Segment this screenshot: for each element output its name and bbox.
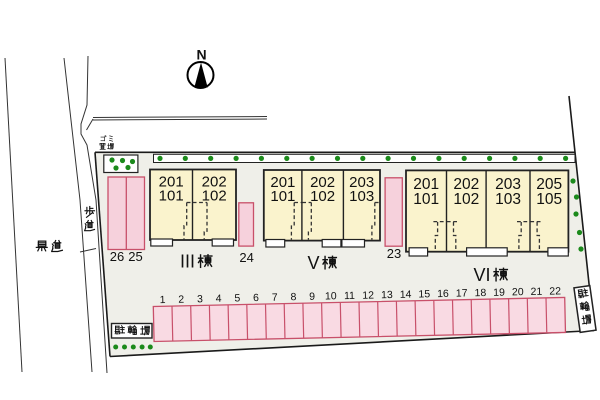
svg-text:23: 23 — [387, 246, 401, 261]
svg-text:25: 25 — [128, 249, 142, 264]
svg-text:4: 4 — [216, 293, 222, 305]
svg-text:103: 103 — [495, 191, 521, 208]
svg-text:15: 15 — [418, 288, 430, 300]
svg-text:18: 18 — [474, 287, 486, 299]
svg-text:102: 102 — [310, 188, 335, 205]
svg-text:12: 12 — [362, 289, 374, 301]
svg-text:2: 2 — [178, 294, 184, 306]
svg-text:3: 3 — [197, 293, 203, 305]
svg-text:20: 20 — [512, 286, 524, 298]
svg-text:17: 17 — [456, 287, 468, 299]
svg-text:16: 16 — [437, 288, 449, 300]
svg-text:19: 19 — [493, 287, 505, 299]
svg-text:105: 105 — [536, 191, 562, 208]
svg-text:102: 102 — [202, 188, 227, 205]
svg-text:5: 5 — [234, 292, 240, 304]
svg-text:1: 1 — [160, 294, 166, 306]
svg-text:7: 7 — [272, 292, 278, 304]
svg-text:11: 11 — [344, 290, 355, 302]
svg-text:6: 6 — [253, 292, 259, 304]
svg-text:21: 21 — [530, 286, 542, 298]
svg-text:9: 9 — [309, 291, 315, 303]
svg-text:N: N — [196, 47, 206, 63]
svg-text:VI: VI — [473, 265, 490, 285]
svg-text:101: 101 — [270, 188, 295, 205]
svg-text:24: 24 — [239, 250, 253, 265]
svg-text:III: III — [180, 252, 195, 272]
svg-text:13: 13 — [381, 289, 393, 301]
svg-text:101: 101 — [159, 188, 184, 205]
svg-text:102: 102 — [453, 191, 479, 208]
svg-text:26: 26 — [110, 249, 124, 264]
svg-text:22: 22 — [549, 285, 561, 297]
svg-text:103: 103 — [349, 188, 374, 205]
svg-text:8: 8 — [290, 291, 296, 303]
svg-text:V: V — [307, 253, 319, 273]
svg-text:10: 10 — [325, 290, 337, 302]
svg-text:101: 101 — [413, 191, 439, 208]
svg-text:14: 14 — [400, 289, 412, 301]
